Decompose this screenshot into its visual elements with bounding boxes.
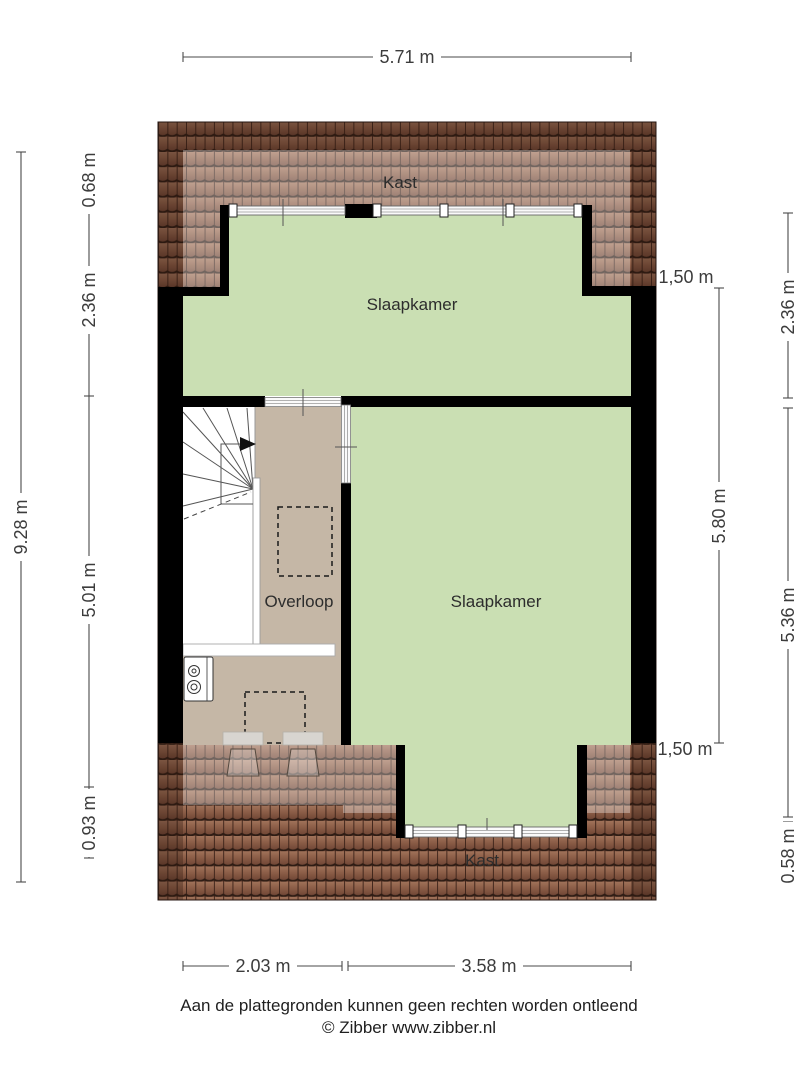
- desk-left: [223, 732, 263, 745]
- wall-dormer-left: [396, 745, 405, 838]
- chair-right: [287, 749, 319, 776]
- wall-divider-left: [183, 396, 265, 407]
- wall-window-pier: [345, 204, 377, 218]
- floorplan-svg: Kast Slaapkamer Overloop Slaapkamer Kast: [0, 0, 809, 1080]
- window-dormer: [405, 827, 577, 837]
- dim-bottom-1: 3.58 m: [461, 956, 516, 976]
- wall-side-left: [158, 287, 183, 743]
- bedroom-top-floor-narrow: [229, 214, 582, 296]
- room-label-kast-top: Kast: [383, 173, 417, 192]
- dim-right-cap-top: 1,50 m: [658, 267, 713, 287]
- chair-left: [227, 749, 259, 776]
- bedroom-bottom-dormer-floor: [405, 745, 577, 828]
- wall-dormer-right: [577, 745, 587, 838]
- room-label-slaapkamer-bottom: Slaapkamer: [451, 592, 542, 611]
- dim-right-cap-bottom: 1,50 m: [657, 739, 712, 759]
- room-label-overloop: Overloop: [265, 592, 334, 611]
- wall-top-right-corner: [582, 205, 592, 287]
- floorplan-page: Kast Slaapkamer Overloop Slaapkamer Kast: [0, 0, 809, 1080]
- wall-divider-right: [341, 396, 631, 407]
- dim-left-0: 0.68 m: [79, 152, 99, 207]
- footer-disclaimer: Aan de plattegronden kunnen geen rechten…: [180, 996, 637, 1015]
- dim-right-0: 2.36 m: [778, 279, 798, 334]
- boiler-unit: [184, 657, 213, 701]
- stair-landing-step: [183, 644, 335, 656]
- dim-right-inner: 5.80 m: [709, 488, 729, 543]
- dim-left-1: 2.36 m: [79, 272, 99, 327]
- desk-right: [283, 732, 323, 745]
- stair-railing: [253, 478, 260, 648]
- wall-overloop-bedroom: [341, 483, 351, 745]
- footer-copyright: © Zibber www.zibber.nl: [322, 1018, 496, 1037]
- dim-right-2: 0.58 m: [778, 828, 798, 883]
- bedroom-bottom-floor: [351, 407, 631, 745]
- dim-left-2: 5.01 m: [79, 562, 99, 617]
- room-label-slaapkamer-top: Slaapkamer: [367, 295, 458, 314]
- dim-right-1: 5.36 m: [778, 587, 798, 642]
- dim-left-3: 0.93 m: [79, 795, 99, 850]
- footer: Aan de plattegronden kunnen geen rechten…: [180, 996, 637, 1037]
- dim-bottom-0: 2.03 m: [235, 956, 290, 976]
- wall-side-right: [631, 286, 656, 743]
- dim-left-total: 9.28 m: [11, 499, 31, 554]
- wall-top-left-corner: [220, 205, 229, 287]
- dim-top: 5.71 m: [379, 47, 434, 67]
- window-top-left: [229, 206, 345, 215]
- room-label-kast-bottom: Kast: [465, 851, 499, 870]
- window-top-right: [377, 206, 582, 215]
